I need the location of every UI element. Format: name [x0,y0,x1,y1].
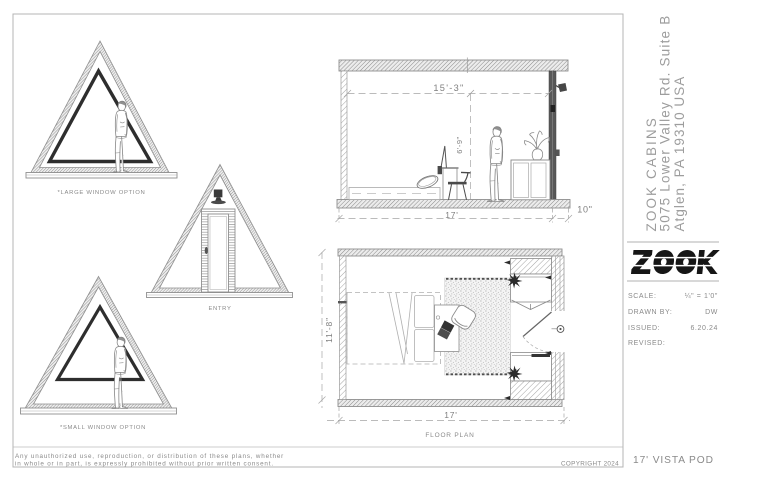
svg-text:ISSUED:: ISSUED: [628,325,660,332]
svg-text:REVISED:: REVISED: [628,340,665,347]
svg-text:¼" = 1'0": ¼" = 1'0" [685,293,718,300]
svg-text:DRAWN BY:: DRAWN BY: [628,309,672,316]
svg-text:COPYRIGHT 2024: COPYRIGHT 2024 [561,461,619,468]
svg-text:SCALE:: SCALE: [628,293,657,300]
svg-text:17': 17' [445,210,458,220]
svg-text:DW: DW [705,309,718,316]
svg-text:6'-9": 6'-9" [455,136,464,153]
svg-text:*SMALL WINDOW OPTION: *SMALL WINDOW OPTION [60,425,146,431]
svg-text:Atglen, PA 19310 USA: Atglen, PA 19310 USA [672,76,687,232]
svg-text:6.20.24: 6.20.24 [690,325,718,332]
svg-text:ENTRY: ENTRY [208,306,231,312]
svg-text:17': 17' [444,410,457,420]
svg-text:5075 Lower Valley Rd. Suite B: 5075 Lower Valley Rd. Suite B [658,15,673,232]
svg-text:FLOOR PLAN: FLOOR PLAN [425,432,474,439]
svg-text:*LARGE WINDOW OPTION: *LARGE WINDOW OPTION [58,190,146,196]
svg-text:11'-8": 11'-8" [324,317,334,343]
svg-text:Any unauthorized use, reproduc: Any unauthorized use, reproduction, or d… [15,453,284,460]
svg-text:10": 10" [577,205,593,215]
svg-text:in whole or in part, is expres: in whole or in part, is expressly prohib… [15,461,274,468]
svg-text:15'-3": 15'-3" [433,83,464,93]
svg-text:17' VISTA POD: 17' VISTA POD [633,455,714,466]
